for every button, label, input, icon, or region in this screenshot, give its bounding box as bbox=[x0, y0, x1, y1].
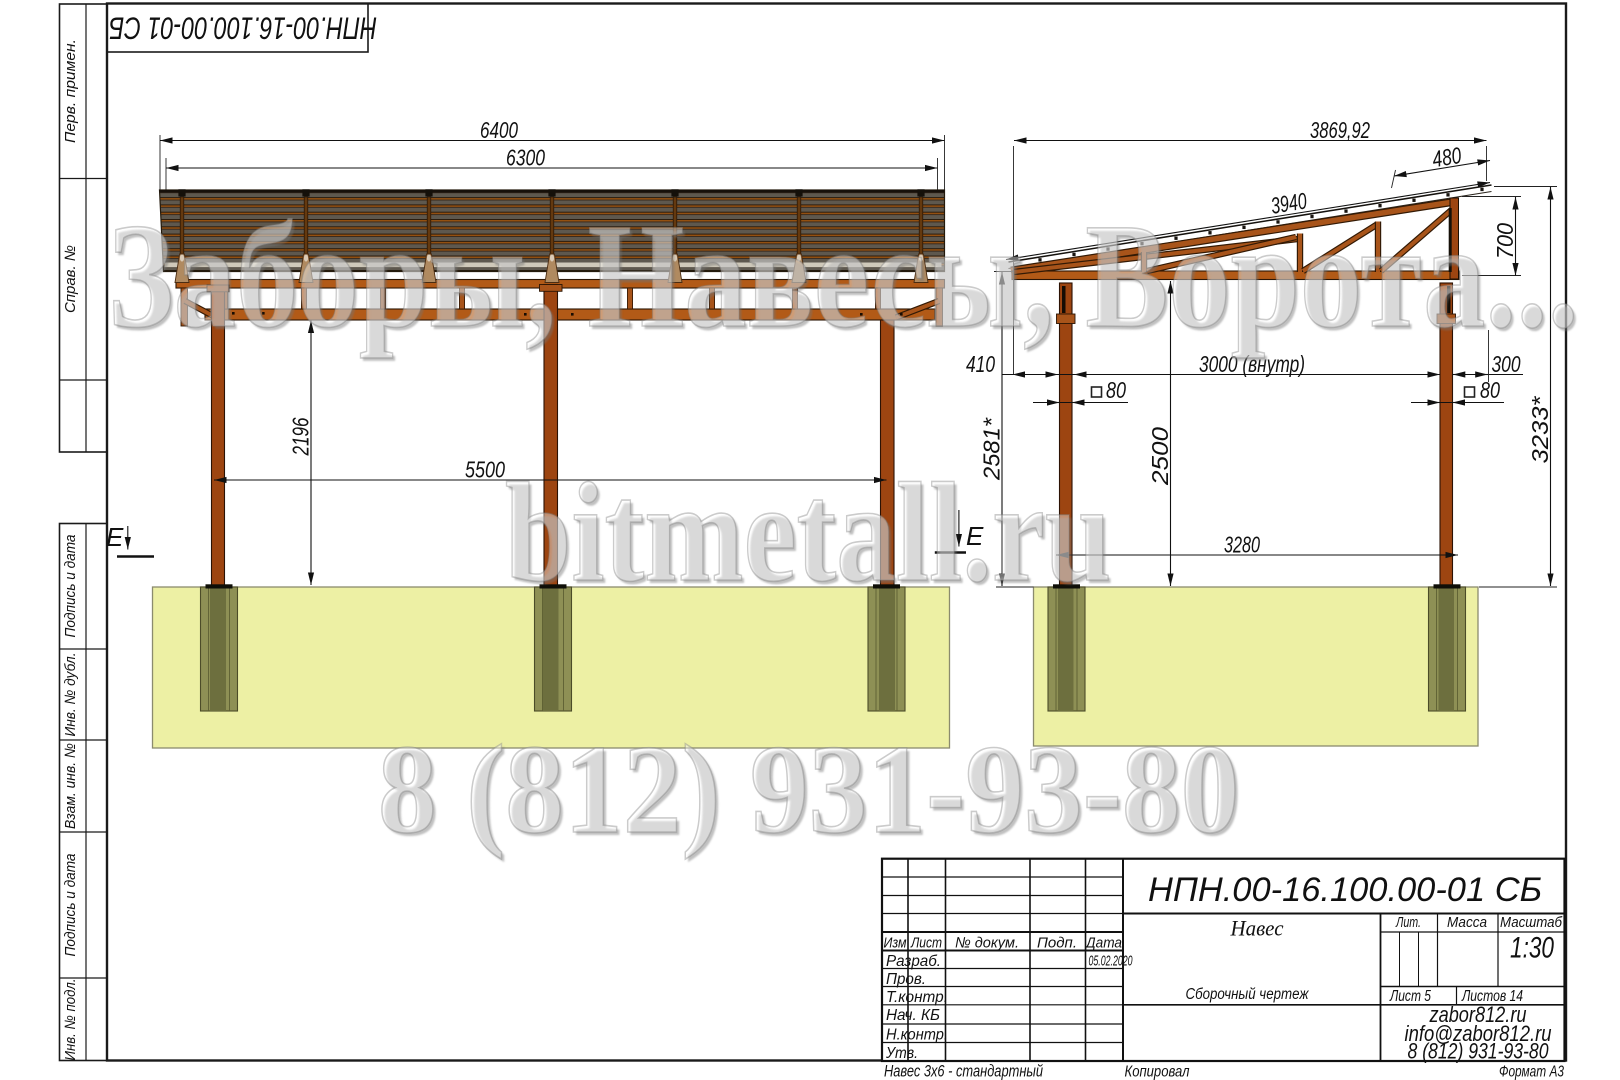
svg-text:5500: 5500 bbox=[465, 457, 505, 483]
svg-text:Утв.: Утв. bbox=[885, 1045, 918, 1062]
svg-text:1:30: 1:30 bbox=[1510, 932, 1554, 965]
svg-text:3280: 3280 bbox=[1224, 532, 1260, 558]
svg-text:Навес 3х6 - стандартный: Навес 3х6 - стандартный bbox=[884, 1062, 1043, 1080]
svg-text:Дата: Дата bbox=[1084, 935, 1122, 952]
svg-text:6400: 6400 bbox=[480, 117, 518, 143]
svg-text:6300: 6300 bbox=[506, 145, 545, 171]
svg-text:№ докум.: № докум. bbox=[955, 935, 1019, 952]
svg-text:480: 480 bbox=[1430, 142, 1463, 172]
svg-text:Формат А3: Формат А3 bbox=[1499, 1064, 1564, 1080]
svg-text:2500: 2500 bbox=[1147, 427, 1173, 486]
svg-text:Инв. № дубл.: Инв. № дубл. bbox=[62, 653, 79, 737]
svg-text:Взам. инв. №: Взам. инв. № bbox=[62, 743, 79, 829]
svg-text:Н.контр.: Н.контр. bbox=[886, 1026, 948, 1043]
svg-text:Подпись и дата: Подпись и дата bbox=[62, 535, 79, 638]
svg-text:Сборочный чертеж: Сборочный чертеж bbox=[1186, 986, 1310, 1003]
svg-text:05.02.2020: 05.02.2020 bbox=[1089, 953, 1133, 970]
svg-text:Изм: Изм bbox=[884, 935, 907, 952]
svg-text:3233*: 3233* bbox=[1527, 395, 1553, 463]
svg-text:Лит.: Лит. bbox=[1395, 914, 1421, 931]
svg-text:Подпись и дата: Подпись и дата bbox=[62, 854, 79, 957]
svg-text:Лист 5: Лист 5 bbox=[1389, 988, 1431, 1005]
svg-text:НПН.00-16.100.00-01 СБ: НПН.00-16.100.00-01 СБ bbox=[109, 11, 377, 47]
svg-text:Разраб.: Разраб. bbox=[886, 953, 941, 970]
svg-text:Навес: Навес bbox=[1230, 916, 1284, 941]
svg-text:НПН.00-16.100.00-01 СБ: НПН.00-16.100.00-01 СБ bbox=[1148, 871, 1542, 909]
svg-text:8 (812) 931-93-80: 8 (812) 931-93-80 bbox=[1408, 1039, 1550, 1064]
svg-text:Т.контр.: Т.контр. bbox=[886, 989, 948, 1006]
svg-text:E: E bbox=[106, 522, 124, 552]
svg-text:Пров.: Пров. bbox=[886, 971, 926, 988]
svg-text:Перв. примен.: Перв. примен. bbox=[62, 39, 79, 143]
svg-text:Нач. КБ: Нач. КБ bbox=[886, 1007, 940, 1024]
svg-text:Подп.: Подп. bbox=[1037, 935, 1077, 952]
svg-text:Инв. № подл.: Инв. № подл. bbox=[62, 979, 79, 1061]
svg-text:2196: 2196 bbox=[288, 417, 314, 456]
svg-text:Лист: Лист bbox=[910, 935, 942, 952]
svg-text:80: 80 bbox=[1106, 377, 1126, 403]
svg-text:Копировал: Копировал bbox=[1125, 1064, 1190, 1080]
svg-text:80: 80 bbox=[1480, 377, 1500, 403]
svg-text:3869,92: 3869,92 bbox=[1310, 117, 1370, 143]
svg-text:Справ. №: Справ. № bbox=[62, 245, 79, 313]
svg-text:Масштаб: Масштаб bbox=[1500, 915, 1563, 931]
svg-text:Масса: Масса bbox=[1447, 914, 1487, 931]
